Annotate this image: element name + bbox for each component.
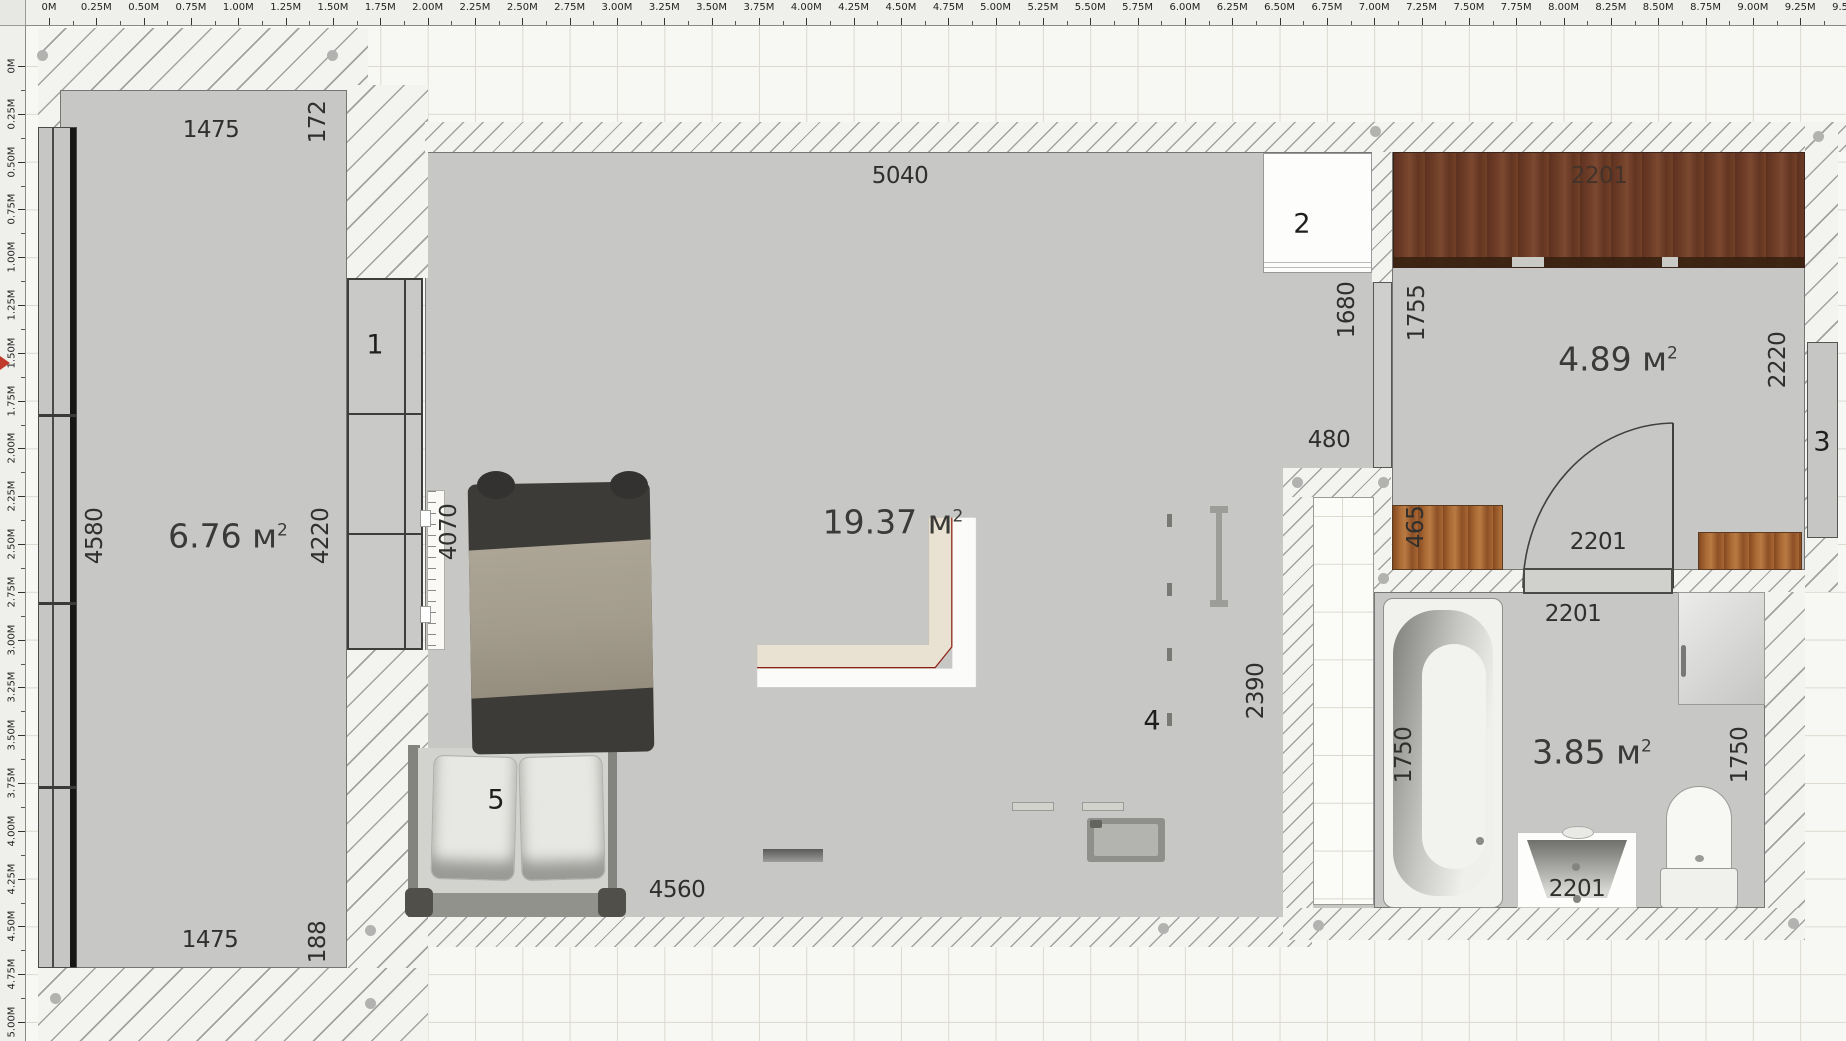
ruler-tick bbox=[1327, 18, 1328, 25]
balcony-side-window[interactable] bbox=[38, 127, 77, 968]
dim-sink-code: 2201 bbox=[1549, 876, 1606, 902]
ruler-top-label: 9.00M bbox=[1737, 2, 1768, 13]
ruler-tick-minor bbox=[451, 21, 452, 25]
wall-node[interactable] bbox=[1378, 573, 1389, 584]
window-divider bbox=[39, 414, 76, 417]
ruler-top-label: 3.25M bbox=[649, 2, 680, 13]
ruler-corner bbox=[0, 0, 26, 26]
ruler-tick bbox=[1516, 18, 1517, 25]
ruler-tick bbox=[1469, 18, 1470, 25]
ruler-tick bbox=[18, 114, 25, 115]
ruler-left-label: 0.50M bbox=[7, 146, 18, 177]
ruler-tick bbox=[18, 257, 25, 258]
wall-node[interactable] bbox=[1292, 477, 1303, 488]
ruler-tick-minor bbox=[21, 950, 25, 951]
ruler-tick-minor bbox=[21, 233, 25, 234]
ruler-top-label: 2.75M bbox=[554, 2, 585, 13]
ruler-tick bbox=[1090, 18, 1091, 25]
ruler-left-label: 3.25M bbox=[7, 672, 18, 703]
dim-bath-right: 1750 bbox=[1727, 727, 1753, 784]
ruler-tick-minor bbox=[21, 138, 25, 139]
dim-bath-door-code: 2201 bbox=[1545, 601, 1602, 627]
ruler-tick-minor bbox=[688, 21, 689, 25]
ruler-tick bbox=[1185, 18, 1186, 25]
ruler-left-label: 2.25M bbox=[7, 481, 18, 512]
ruler-top-label: 2.25M bbox=[460, 2, 491, 13]
fridge[interactable] bbox=[1263, 153, 1372, 273]
ruler-tick-minor bbox=[21, 281, 25, 282]
ruler-tick bbox=[18, 926, 25, 927]
dim-living-top: 5040 bbox=[872, 163, 929, 189]
pillow bbox=[518, 755, 605, 881]
ruler-top-label: 6.00M bbox=[1169, 2, 1200, 13]
wall-living-top[interactable] bbox=[425, 122, 1846, 152]
bed-foot bbox=[405, 888, 433, 917]
wardrobe-door-gap bbox=[1662, 257, 1678, 267]
ruler-tick-minor bbox=[1635, 21, 1636, 25]
ruler-tick bbox=[144, 18, 145, 25]
ruler-tick bbox=[1043, 18, 1044, 25]
ruler-tick bbox=[18, 687, 25, 688]
ruler-tick-minor bbox=[21, 664, 25, 665]
ruler-tick-minor bbox=[309, 21, 310, 25]
ruler-tick-minor bbox=[1682, 21, 1683, 25]
ruler-tick-minor bbox=[593, 21, 594, 25]
ruler-left-label: 1.50M bbox=[7, 337, 18, 368]
ruler-top-label: 0.25M bbox=[81, 2, 112, 13]
cabinet-handle bbox=[1167, 514, 1172, 527]
wall-bath-bottom[interactable] bbox=[1283, 908, 1805, 940]
ventilation-shaft[interactable] bbox=[1313, 497, 1374, 905]
blanket-corner bbox=[610, 471, 648, 499]
ruler-tick bbox=[333, 18, 334, 25]
ruler-tick bbox=[18, 496, 25, 497]
ruler-tick-minor bbox=[735, 21, 736, 25]
marker-bed: 5 bbox=[487, 785, 504, 816]
sink-basin bbox=[1094, 824, 1158, 856]
ruler-tick bbox=[18, 640, 25, 641]
area-sup: 2 bbox=[1667, 344, 1678, 364]
toilet-tank[interactable] bbox=[1660, 868, 1738, 908]
wardrobe-door-gap bbox=[1512, 257, 1544, 267]
wall-node[interactable] bbox=[50, 993, 61, 1004]
wall-node[interactable] bbox=[1813, 131, 1824, 142]
ruler-tick bbox=[1422, 18, 1423, 25]
ruler-top-label: 7.75M bbox=[1501, 2, 1532, 13]
cabinet-handle bbox=[1167, 713, 1172, 726]
ruler-tick bbox=[18, 735, 25, 736]
area-sup: 2 bbox=[1641, 737, 1652, 757]
ruler-horizontal[interactable]: 0M0.25M0.50M0.75M1.00M1.25M1.50M1.75M2.0… bbox=[0, 0, 1846, 26]
ruler-tick-minor bbox=[21, 998, 25, 999]
hall-cabinet-right[interactable] bbox=[1698, 532, 1802, 570]
ruler-left-label: 2.75M bbox=[7, 576, 18, 607]
ruler-tick bbox=[1800, 18, 1801, 25]
ruler-left-label: 4.50M bbox=[7, 911, 18, 942]
ruler-tick bbox=[948, 18, 949, 25]
dim-tub: 1750 bbox=[1391, 727, 1417, 784]
ruler-tick-minor bbox=[21, 807, 25, 808]
kitchen-rail bbox=[1216, 512, 1222, 602]
window-divider bbox=[349, 413, 421, 415]
ruler-left-label: 4.75M bbox=[7, 959, 18, 990]
ruler-left-label: 0.25M bbox=[7, 98, 18, 129]
ruler-tick-minor bbox=[877, 21, 878, 25]
ruler-tick bbox=[1706, 18, 1707, 25]
ruler-tick-minor bbox=[1587, 21, 1588, 25]
ruler-tick bbox=[18, 401, 25, 402]
wall-balcony-top[interactable] bbox=[38, 28, 368, 90]
ruler-top-label: 1.00M bbox=[223, 2, 254, 13]
ruler-tick bbox=[18, 1022, 25, 1023]
ruler-top-label: 0M bbox=[42, 2, 57, 13]
ruler-top-label: 5.75M bbox=[1122, 2, 1153, 13]
area-label-hall: 4.89 м2 bbox=[1558, 340, 1678, 379]
ruler-tick-minor bbox=[1351, 21, 1352, 25]
ruler-tick-minor bbox=[21, 377, 25, 378]
cabinet-handle bbox=[1167, 583, 1172, 596]
ruler-top-label: 8.25M bbox=[1595, 2, 1626, 13]
dim-hall-cabinet: 465 bbox=[1403, 506, 1429, 548]
sink-faucet bbox=[1090, 820, 1102, 828]
ruler-left-label: 3.00M bbox=[7, 624, 18, 655]
ruler-tick-minor bbox=[1067, 21, 1068, 25]
ruler-tick-minor bbox=[120, 21, 121, 25]
dim-balcony-bottom-right: 188 bbox=[305, 921, 331, 963]
cabinet-handle bbox=[1082, 802, 1124, 811]
door-leaf[interactable] bbox=[1523, 568, 1673, 594]
bed-foot bbox=[598, 888, 626, 917]
dim-wardrobe-code: 2201 bbox=[1571, 163, 1628, 189]
wall-node[interactable] bbox=[37, 50, 48, 61]
ruler-tick-minor bbox=[215, 21, 216, 25]
ruler-tick-minor bbox=[21, 711, 25, 712]
ruler-left-label: 2.50M bbox=[7, 529, 18, 560]
window-inner-frame bbox=[70, 128, 76, 967]
window-mullion bbox=[52, 128, 54, 967]
area-value: 3.85 м bbox=[1532, 733, 1641, 772]
ruler-tick-minor bbox=[1114, 21, 1115, 25]
ruler-top-label: 0.50M bbox=[128, 2, 159, 13]
ruler-top-label: 1.75M bbox=[365, 2, 396, 13]
cabinet-handle bbox=[1012, 802, 1054, 811]
ruler-tick bbox=[18, 592, 25, 593]
ruler-top-label: 7.50M bbox=[1453, 2, 1484, 13]
dim-balcony-right: 4220 bbox=[308, 508, 334, 565]
wall-node[interactable] bbox=[365, 998, 376, 1009]
ruler-tick-minor bbox=[21, 855, 25, 856]
ruler-tick bbox=[475, 18, 476, 25]
ruler-left-label: 1.75M bbox=[7, 385, 18, 416]
area-value: 4.89 м bbox=[1558, 340, 1667, 379]
dim-opening: 480 bbox=[1308, 427, 1350, 453]
ruler-top-label: 9.25M bbox=[1785, 2, 1816, 13]
wall-node[interactable] bbox=[1370, 126, 1381, 137]
ruler-tick-minor bbox=[21, 759, 25, 760]
ruler-tick-minor bbox=[1540, 21, 1541, 25]
ruler-tick bbox=[901, 18, 902, 25]
ruler-top-label: 1.25M bbox=[270, 2, 301, 13]
ruler-tick-minor bbox=[73, 21, 74, 25]
ruler-tick bbox=[759, 18, 760, 25]
dim-hall-door-code: 2201 bbox=[1570, 529, 1627, 555]
dim-balcony-top-right: 172 bbox=[305, 101, 331, 143]
ruler-top-label: 7.25M bbox=[1406, 2, 1437, 13]
ruler-tick bbox=[286, 18, 287, 25]
ruler-tick bbox=[18, 879, 25, 880]
fridge-line bbox=[1264, 262, 1371, 263]
ruler-left-label: 0M bbox=[7, 59, 18, 74]
ruler-tick-minor bbox=[21, 90, 25, 91]
ruler-top-label: 6.25M bbox=[1217, 2, 1248, 13]
ruler-tick bbox=[18, 783, 25, 784]
ruler-top-label: 5.25M bbox=[1027, 2, 1058, 13]
ruler-top-label: 4.75M bbox=[933, 2, 964, 13]
area-label-bath: 3.85 м2 bbox=[1532, 733, 1652, 772]
ruler-top-label: 3.75M bbox=[743, 2, 774, 13]
marker-fridge: 2 bbox=[1293, 209, 1310, 240]
wall-bath-top-left[interactable] bbox=[1374, 570, 1523, 592]
ruler-tick bbox=[18, 831, 25, 832]
wall-node[interactable] bbox=[1313, 920, 1324, 931]
ruler-tick bbox=[1138, 18, 1139, 25]
ruler-tick bbox=[18, 974, 25, 975]
ruler-top-label: 8.75M bbox=[1690, 2, 1721, 13]
wardrobe-front-edge bbox=[1394, 257, 1804, 267]
cabinet-handle bbox=[1167, 648, 1172, 661]
area-label-balcony: 6.76 м2 bbox=[168, 517, 288, 556]
wall-bath-right[interactable] bbox=[1765, 592, 1805, 908]
floorplan-editor: 1 5 bbox=[0, 0, 1846, 1041]
ruler-top-label: 0.75M bbox=[176, 2, 207, 13]
ruler-tick-minor bbox=[262, 21, 263, 25]
ruler-vertical[interactable]: 0M0.25M0.50M0.75M1.00M1.25M1.50M1.75M2.0… bbox=[0, 25, 26, 1041]
ruler-tick bbox=[18, 209, 25, 210]
ruler-tick-minor bbox=[1824, 21, 1825, 25]
toilet-bowl[interactable] bbox=[1666, 786, 1732, 878]
ruler-tick bbox=[712, 18, 713, 25]
area-label-living: 19.37 м2 bbox=[823, 503, 964, 542]
wall-node[interactable] bbox=[1788, 918, 1799, 929]
bed-blanket bbox=[468, 481, 655, 754]
ruler-tick-minor bbox=[1445, 21, 1446, 25]
ruler-tick bbox=[96, 18, 97, 25]
ruler-top-label: 5.00M bbox=[980, 2, 1011, 13]
ruler-left-label: 4.25M bbox=[7, 863, 18, 894]
ruler-top-label: 8.50M bbox=[1643, 2, 1674, 13]
ruler-tick-minor bbox=[21, 329, 25, 330]
ruler-left-label: 0.75M bbox=[7, 194, 18, 225]
bathtub-floor bbox=[1422, 644, 1486, 869]
ruler-top-label: 4.50M bbox=[885, 2, 916, 13]
ruler-tick bbox=[49, 18, 50, 25]
fridge-line bbox=[1264, 267, 1371, 268]
ruler-tick-minor bbox=[1398, 21, 1399, 25]
wall-node[interactable] bbox=[365, 925, 376, 936]
area-value: 19.37 м bbox=[823, 503, 953, 542]
ruler-tick-minor bbox=[404, 21, 405, 25]
ruler-tick-minor bbox=[925, 21, 926, 25]
ruler-tick-minor bbox=[1019, 21, 1020, 25]
ruler-tick-minor bbox=[641, 21, 642, 25]
ruler-left-label: 3.50M bbox=[7, 720, 18, 751]
ruler-tick-minor bbox=[21, 903, 25, 904]
blanket-corner bbox=[477, 471, 515, 499]
dim-living-left: 4070 bbox=[436, 504, 462, 561]
ruler-tick-minor bbox=[1161, 21, 1162, 25]
ruler-tick-minor bbox=[21, 520, 25, 521]
marker-right-window: 3 bbox=[1813, 427, 1830, 458]
ruler-tick bbox=[1564, 18, 1565, 25]
ruler-tick bbox=[806, 18, 807, 25]
ruler-tick bbox=[617, 18, 618, 25]
ruler-tick bbox=[522, 18, 523, 25]
ruler-top-label: 2.00M bbox=[412, 2, 443, 13]
ruler-tick-minor bbox=[830, 21, 831, 25]
wall-node[interactable] bbox=[327, 50, 338, 61]
ruler-tick-minor bbox=[21, 425, 25, 426]
wall-balcony-right-upper[interactable] bbox=[347, 85, 428, 278]
dim-balcony-left: 4580 bbox=[82, 508, 108, 565]
ruler-tick bbox=[191, 18, 192, 25]
ruler-top-label: 3.50M bbox=[696, 2, 727, 13]
ruler-tick bbox=[570, 18, 571, 25]
ruler-top-label: 6.50M bbox=[1264, 2, 1295, 13]
ruler-tick bbox=[428, 18, 429, 25]
ruler-top-label: 7.00M bbox=[1359, 2, 1390, 13]
wall-node[interactable] bbox=[1158, 923, 1169, 934]
ruler-tick bbox=[1232, 18, 1233, 25]
pillow bbox=[430, 755, 517, 881]
bed-throw bbox=[468, 539, 655, 699]
ruler-tick bbox=[1753, 18, 1754, 25]
wall-partition-thin[interactable] bbox=[1373, 282, 1392, 468]
ruler-tick-minor bbox=[1256, 21, 1257, 25]
wall-bath-top-right[interactable] bbox=[1673, 570, 1805, 592]
ruler-tick-minor bbox=[972, 21, 973, 25]
oven-front[interactable] bbox=[763, 849, 823, 862]
ruler-tick bbox=[18, 305, 25, 306]
area-sup: 2 bbox=[953, 507, 964, 527]
marker-balcony-window: 1 bbox=[366, 330, 383, 361]
dim-kitchen-side: 2390 bbox=[1243, 663, 1269, 720]
bathtub-drain bbox=[1476, 837, 1484, 845]
ruler-tick bbox=[18, 162, 25, 163]
ruler-tick bbox=[664, 18, 665, 25]
window-divider bbox=[39, 786, 76, 789]
marker-kitchen: 4 bbox=[1143, 706, 1160, 737]
wall-partition-upper[interactable] bbox=[1372, 152, 1392, 282]
ruler-tick-minor bbox=[21, 472, 25, 473]
ruler-tick bbox=[18, 544, 25, 545]
ruler-tick-minor bbox=[21, 616, 25, 617]
area-value: 6.76 м bbox=[168, 517, 277, 556]
window-divider bbox=[39, 602, 76, 605]
ruler-tick bbox=[18, 353, 25, 354]
ruler-top-label: 3.00M bbox=[602, 2, 633, 13]
ruler-top-label: 2.50M bbox=[507, 2, 538, 13]
ruler-tick bbox=[1280, 18, 1281, 25]
ruler-left-label: 3.75M bbox=[7, 768, 18, 799]
dim-partition-left: 1680 bbox=[1334, 282, 1360, 339]
ruler-tick-minor bbox=[499, 21, 500, 25]
ruler-tick bbox=[996, 18, 997, 25]
ruler-tick-minor bbox=[1493, 21, 1494, 25]
sink-faucet bbox=[1562, 826, 1594, 839]
dim-balcony-top: 1475 bbox=[183, 117, 240, 143]
ruler-tick-minor bbox=[167, 21, 168, 25]
ruler-top-label: 6.75M bbox=[1311, 2, 1342, 13]
ruler-top-label: 5.50M bbox=[1075, 2, 1106, 13]
ruler-tick bbox=[1611, 18, 1612, 25]
ruler-tick-minor bbox=[1729, 21, 1730, 25]
dim-living-bottom: 4560 bbox=[649, 877, 706, 903]
dim-partition-right: 1755 bbox=[1404, 285, 1430, 342]
ruler-tick bbox=[854, 18, 855, 25]
ruler-left-label: 2.00M bbox=[7, 433, 18, 464]
ruler-left-label: 1.25M bbox=[7, 290, 18, 321]
ruler-tick-minor bbox=[357, 21, 358, 25]
ruler-tick bbox=[18, 66, 25, 67]
ruler-top-label: 8.00M bbox=[1548, 2, 1579, 13]
ruler-tick bbox=[1658, 18, 1659, 25]
ruler-tick-minor bbox=[21, 186, 25, 187]
area-sup: 2 bbox=[277, 521, 288, 541]
ruler-top-label: 4.00M bbox=[791, 2, 822, 13]
ruler-top-label: 9.50M bbox=[1832, 2, 1846, 13]
toilet-flush bbox=[1695, 855, 1704, 862]
sink-drain bbox=[1572, 863, 1580, 871]
dim-hall-right: 2220 bbox=[1765, 332, 1791, 389]
ruler-tick bbox=[1374, 18, 1375, 25]
shower-tray[interactable] bbox=[1678, 592, 1765, 705]
ruler-left-label: 4.00M bbox=[7, 815, 18, 846]
dim-balcony-bottom: 1475 bbox=[182, 927, 239, 953]
shower-handle bbox=[1681, 645, 1686, 677]
ruler-left-label: 5.00M bbox=[7, 1007, 18, 1038]
ruler-tick-minor bbox=[21, 568, 25, 569]
ruler-tick-minor bbox=[1303, 21, 1304, 25]
ruler-tick-minor bbox=[1209, 21, 1210, 25]
kitchen-sink[interactable] bbox=[1087, 818, 1165, 862]
ruler-left-label: 1.00M bbox=[7, 242, 18, 273]
ruler-top-label: 1.50M bbox=[318, 2, 349, 13]
wall-shaft-right[interactable] bbox=[1373, 497, 1391, 572]
ruler-tick-minor bbox=[1777, 21, 1778, 25]
wall-node[interactable] bbox=[1378, 477, 1389, 488]
wall-living-bottom[interactable] bbox=[428, 917, 1312, 947]
kitchen-counter-svg[interactable] bbox=[755, 495, 1295, 915]
bed-footboard bbox=[425, 893, 610, 917]
ruler-tick bbox=[18, 448, 25, 449]
ruler-tick-minor bbox=[546, 21, 547, 25]
ruler-tick-minor bbox=[783, 21, 784, 25]
ruler-tick bbox=[380, 18, 381, 25]
ruler-top-label: 4.25M bbox=[838, 2, 869, 13]
ruler-tick bbox=[238, 18, 239, 25]
